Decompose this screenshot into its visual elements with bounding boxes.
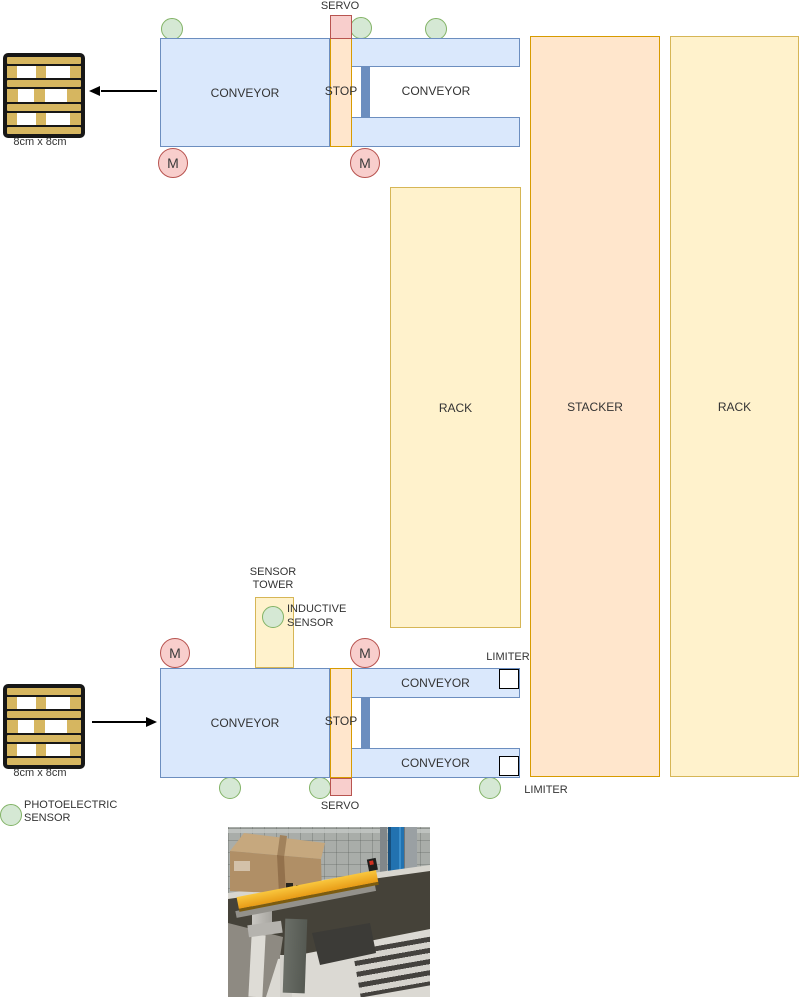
pallet-spacer-row [7,89,81,101]
infeed-arrow-line [92,721,146,723]
pallet-spacer-row [7,66,81,78]
pallet-plank [7,57,81,64]
inductive-sensor-label-line2: SENSOR [287,616,346,630]
limiter-switch-top [499,669,519,689]
main-conveyor-top-label: CONVEYOR [211,86,280,100]
photoelectric-sensor-icon [350,17,372,39]
rack-outer-label: RACK [718,400,751,414]
branch-conveyor-bottom-rail-upper: CONVEYOR [351,668,520,698]
motor-letter: M [359,155,371,171]
limiter-label-bottom: LIMITER [518,784,574,796]
stacker: STACKER [530,36,660,777]
pusher-block [283,919,308,994]
motor-bottom-right: M [350,638,380,668]
photoelectric-legend-line2: SENSOR [24,812,117,825]
stop-label-top: STOP [314,84,368,98]
photoelectric-sensor-icon [161,18,183,40]
pallet-plank [7,711,81,718]
pallet-icon [3,684,85,769]
main-conveyor-top: CONVEYOR [160,38,330,147]
pallet-plank [7,735,81,742]
motor-top-right: M [350,148,380,178]
photoelectric-legend-label: PHOTOELECTRIC SENSOR [24,799,117,825]
limiter-switch-bottom [499,756,519,776]
pallet-plank [7,127,81,134]
pallet-spacer-row [7,113,81,125]
sensor-tower-label-line1: SENSOR [238,566,308,579]
photoelectric-legend-line1: PHOTOELECTRIC [24,799,117,812]
branch-conveyor-bottom-upper-label: CONVEYOR [401,676,470,690]
branch-conveyor-top-rail-upper [351,38,520,67]
photoelectric-sensor-icon [479,777,501,799]
rack-inner: RACK [390,187,521,628]
pallet-in-size-label: 8cm x 8cm [0,767,80,779]
inductive-sensor-label-line1: INDUCTIVE [287,602,346,616]
motor-letter: M [169,645,181,661]
sensor-tower-label-line2: TOWER [238,579,308,592]
pallet-plank [7,80,81,87]
photoelectric-sensor-icon [219,777,241,799]
inductive-sensor-label: INDUCTIVE SENSOR [287,602,346,630]
factory-layout-diagram: SERVO CONVEYOR CONVEYOR STOP M M 8cm x 8… [0,0,801,998]
servo-actuator-bottom [330,778,352,796]
rack-outer: RACK [670,36,799,777]
infeed-arrow-head-icon [146,717,157,727]
photoelectric-sensor-icon [425,18,447,40]
pallet-plank [7,104,81,111]
rack-inner-label: RACK [439,401,472,415]
pallet-plank [7,758,81,765]
branch-conveyor-bottom-lower-label: CONVEYOR [401,756,470,770]
inductive-sensor-icon [262,606,284,628]
branch-conveyor-top-label: CONVEYOR [380,84,492,98]
outfeed-arrow-head-icon [89,86,100,96]
conveyor-stopper-photo [228,827,430,997]
pallet-plank [7,688,81,695]
pallet-icon [3,53,85,138]
sensor-tower-label: SENSOR TOWER [238,566,308,592]
photoelectric-legend-icon [0,804,22,826]
main-conveyor-bottom: CONVEYOR [160,668,330,778]
branch-conveyor-bottom-rail-lower: CONVEYOR [351,748,520,778]
box-label [234,861,250,871]
pallet-out-size-label: 8cm x 8cm [0,136,80,148]
outfeed-arrow-line [101,90,157,92]
stop-label-bottom: STOP [314,714,368,728]
photoelectric-sensor-icon [309,777,331,799]
main-conveyor-bottom-label: CONVEYOR [211,716,280,730]
pallet-spacer-row [7,744,81,756]
pallet-spacer-row [7,720,81,732]
servo-label-top: SERVO [316,0,364,12]
motor-top-left: M [158,148,188,178]
branch-conveyor-top-rail-lower [351,117,520,147]
servo-actuator-top [330,15,352,39]
motor-letter: M [359,645,371,661]
servo-label-bottom: SERVO [316,800,364,812]
motor-bottom-left: M [160,638,190,668]
motor-letter: M [167,155,179,171]
stacker-label: STACKER [567,400,623,414]
limiter-label-top: LIMITER [480,651,536,663]
pallet-spacer-row [7,697,81,709]
